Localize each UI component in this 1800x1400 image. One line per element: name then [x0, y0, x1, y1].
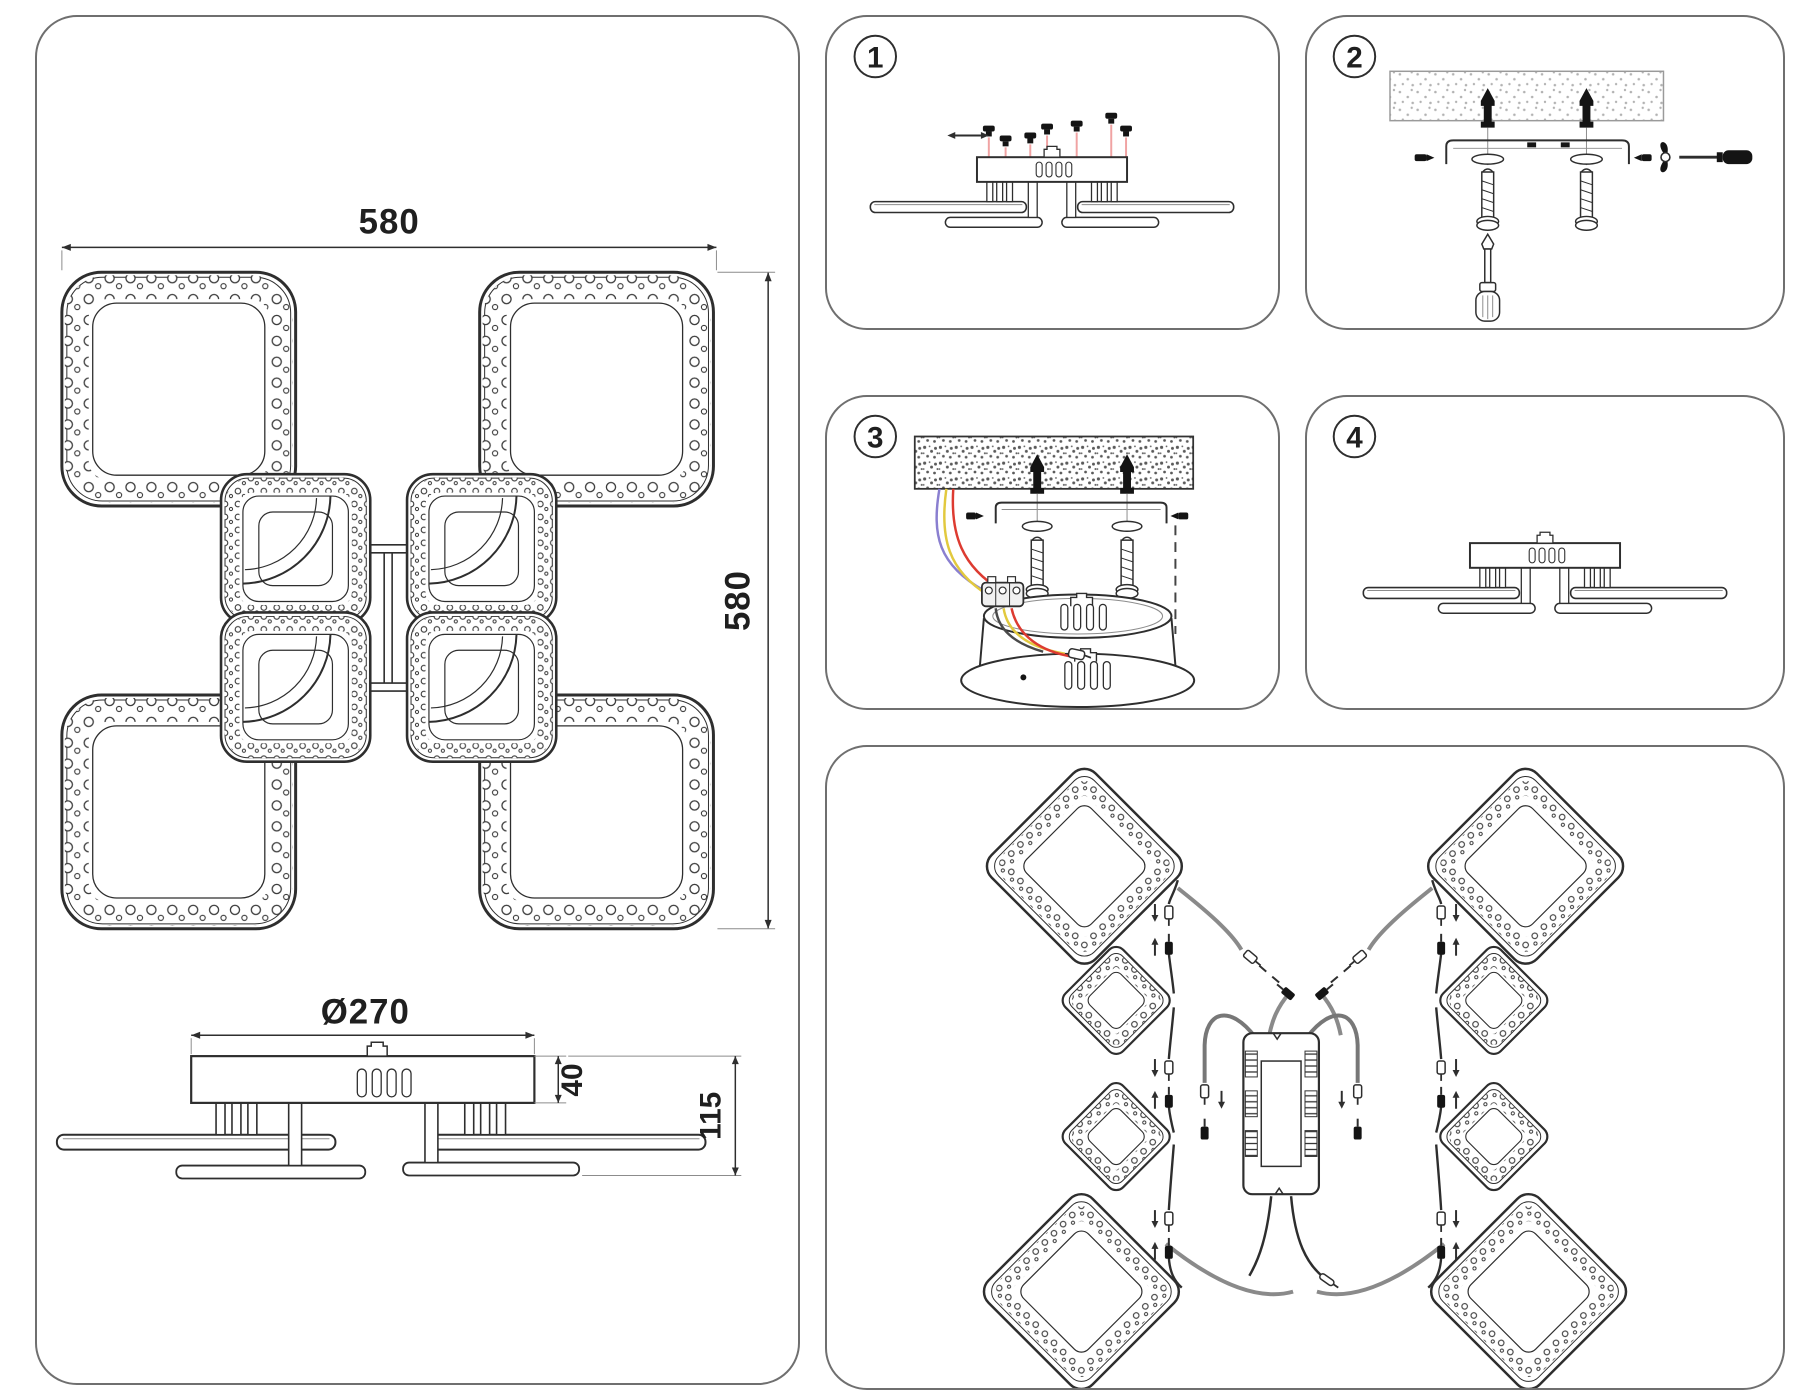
side-view-drawing: Ø270 40 115	[57, 992, 741, 1178]
hand-screwdriver-icon	[1679, 150, 1752, 164]
step-number: 2	[1346, 41, 1362, 74]
driver-output-wires	[1249, 1196, 1323, 1276]
screw-dot-icon	[1020, 674, 1026, 680]
screw-icons	[983, 113, 1132, 147]
wiring-right-chain	[1428, 880, 1441, 1287]
step-number-badge: 2	[1334, 36, 1375, 77]
led-ring-small	[221, 474, 370, 623]
step-number: 4	[1346, 421, 1363, 454]
step-number-badge: 4	[1334, 416, 1375, 457]
led-module-large	[980, 762, 1188, 970]
fixture-side-view	[1363, 532, 1726, 613]
led-module-large	[1422, 762, 1630, 970]
dimension-canopy-height: 40	[534, 1056, 589, 1103]
top-view-drawing: 580 580	[62, 202, 775, 928]
step-number: 3	[867, 421, 883, 454]
dimension-height: 580	[717, 272, 775, 929]
led-driver-box	[1243, 1033, 1319, 1194]
led-ring-large	[480, 272, 714, 506]
width-label: 580	[359, 202, 420, 241]
frame-rods	[370, 545, 407, 691]
canopy-height-label: 40	[556, 1063, 589, 1096]
screw-icon	[1477, 169, 1499, 230]
wire-connector-icon	[1319, 1273, 1340, 1290]
side-screw-icon	[1170, 513, 1188, 520]
step-1-panel: 1	[825, 15, 1280, 330]
step-3-panel: 3	[825, 395, 1280, 710]
step-2-panel: 2	[1305, 15, 1785, 330]
led-ring-large	[62, 272, 296, 506]
direction-arrow-icon	[947, 132, 988, 139]
feed-wire-breaks	[1243, 950, 1367, 1001]
height-label: 580	[718, 570, 757, 631]
led-ring-small	[407, 474, 556, 623]
screw-icon	[1026, 537, 1048, 598]
dimensions-panel: 580 580	[35, 15, 800, 1385]
dimension-total-height: 115	[568, 1056, 741, 1175]
dimension-width: 580	[62, 202, 717, 270]
led-ring-small	[407, 612, 556, 761]
total-height-label: 115	[694, 1092, 727, 1140]
side-screw-icon	[1415, 154, 1435, 161]
side-screw-icon	[1634, 154, 1652, 161]
side-screw-icon	[966, 513, 984, 520]
wiring-diagram-panel	[825, 745, 1785, 1390]
screw-icon	[1576, 169, 1598, 230]
instruction-sheet: 580 580	[0, 0, 1800, 1400]
step-number-badge: 1	[855, 36, 896, 77]
screw-icon	[1116, 537, 1138, 598]
wing-nut-icon	[1660, 142, 1670, 172]
mounting-bracket	[996, 503, 1167, 532]
ceiling-surface	[915, 436, 1193, 488]
step-number: 1	[867, 41, 883, 74]
step-number-badge: 3	[855, 416, 896, 457]
ceiling-surface	[1390, 71, 1663, 120]
fixture-side-view	[870, 146, 1233, 227]
screwdriver-icon	[1476, 234, 1500, 321]
step-4-panel: 4	[1305, 395, 1785, 710]
diameter-label: Ø270	[321, 992, 410, 1031]
terminal-block-icon	[982, 577, 1023, 607]
mounting-bracket	[1446, 140, 1629, 164]
led-ring-small	[221, 612, 370, 761]
wiring-left-chain	[1169, 880, 1182, 1287]
mount-plug-icon	[367, 1042, 387, 1056]
dimension-diameter: Ø270	[191, 992, 534, 1054]
